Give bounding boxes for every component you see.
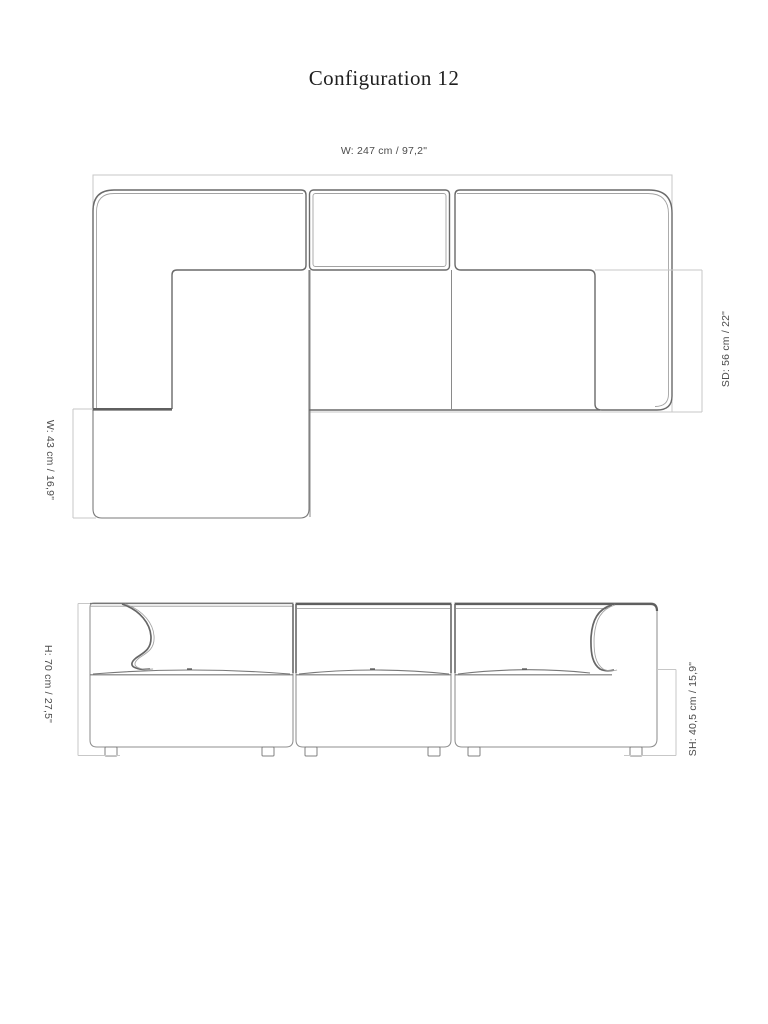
front-view-drawing	[78, 603, 676, 756]
sofa-legs	[105, 747, 642, 756]
dim-label-overall-width: W: 247 cm / 97,2"	[0, 145, 768, 157]
dim-label-seat-height: SH: 40,5 cm / 15,9"	[687, 662, 699, 757]
dim-label-chaise-width: W: 43 cm / 16,9"	[44, 420, 56, 500]
plan-view-drawing	[73, 175, 702, 518]
sofa-footprint	[93, 190, 672, 518]
dim-label-seat-depth: SD: 56 cm / 22"	[720, 311, 732, 387]
dim-label-height: H: 70 cm / 27,5"	[42, 645, 54, 723]
